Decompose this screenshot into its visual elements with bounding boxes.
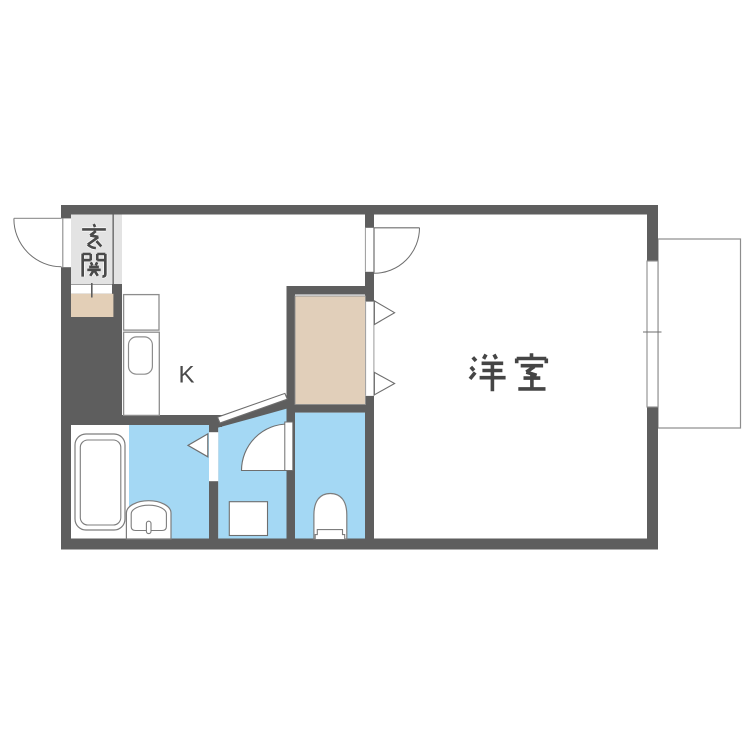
svg-text:K: K — [179, 362, 195, 389]
